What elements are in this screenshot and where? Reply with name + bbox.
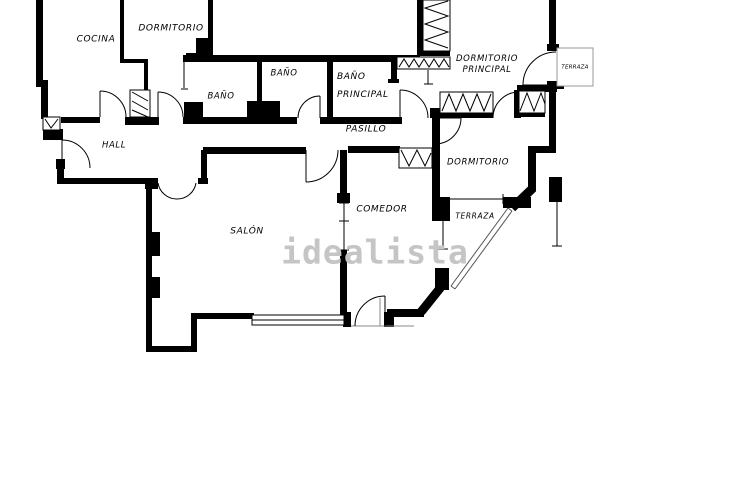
label-dormitorio-top: DORMITORIO [138,24,203,35]
shaft-F [130,90,150,117]
shaft-D [399,148,432,168]
label-hall: HALL [102,141,126,152]
label-dormitorio-principal: DORMITORIO PRINCIPAL [456,54,518,76]
label-bano-2: BAÑO [270,69,297,80]
label-dormitorio-right: DORMITORIO [447,158,509,169]
radiator [147,232,160,256]
radiator [147,277,160,298]
label-terraza-top: TERRAZA [561,63,588,74]
label-comedor: COMEDOR [356,205,407,216]
door-terraza-top [523,52,556,85]
walls [36,0,564,352]
door-dormitorio-principal-1 [400,90,428,118]
door-entrance [62,140,90,168]
label-bano-1: BAÑO [207,92,234,103]
label-terraza-bottom: TERRAZA [455,211,494,222]
door-comedor [306,150,338,182]
radiator [549,177,562,202]
label-salon: SALÓN [230,227,263,238]
label-cocina: COCINA [77,35,116,46]
label-pasillo: PASILLO [346,125,387,136]
bathroom-fixture [247,101,280,117]
label-bano-principal: BAÑO PRINCIPAL [337,68,389,104]
idealista-watermark: idealista [281,233,469,272]
door-cocina [100,91,126,117]
bathroom-fixture [184,102,203,117]
door-salon-double [158,183,196,199]
floorplan-canvas: COCINA DORMITORIO BAÑO BAÑO BAÑO PRINCIP… [0,0,750,500]
door-bano-lobby [158,92,183,117]
door-bano2 [298,96,320,118]
